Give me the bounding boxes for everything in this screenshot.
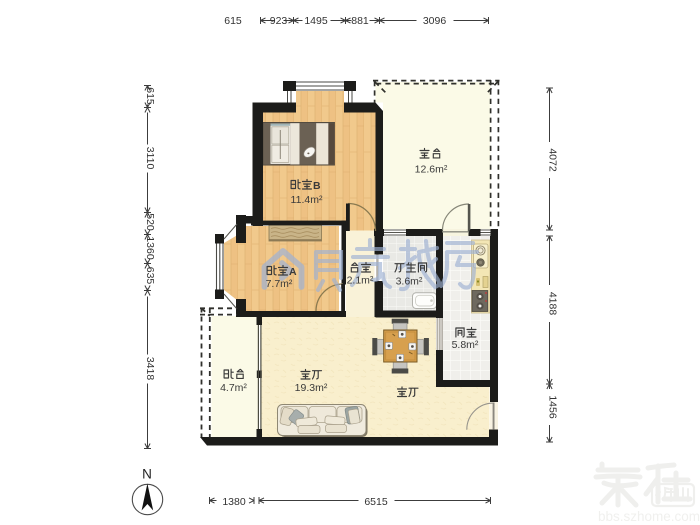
svg-text:5.8m²: 5.8m² [452, 339, 479, 351]
svg-text:4188: 4188 [547, 292, 559, 316]
svg-text:3096: 3096 [423, 15, 447, 27]
svg-text:881: 881 [351, 15, 369, 27]
svg-text:923: 923 [270, 15, 288, 27]
svg-text:4.7m²: 4.7m² [220, 382, 247, 394]
svg-text:7.7m²: 7.7m² [266, 278, 293, 290]
svg-text:2.1m²: 2.1m² [347, 275, 374, 287]
svg-text:1456: 1456 [547, 395, 559, 419]
svg-text:1380: 1380 [222, 496, 246, 508]
svg-text:1360: 1360 [144, 236, 156, 260]
svg-text:3.6m²: 3.6m² [396, 276, 423, 288]
svg-text:635: 635 [144, 267, 156, 285]
svg-text:N: N [142, 467, 152, 482]
svg-text:bbs.szhome.com: bbs.szhome.com [598, 509, 700, 524]
svg-text:615: 615 [224, 15, 242, 27]
svg-text:19.3m²: 19.3m² [295, 382, 328, 394]
svg-text:1495: 1495 [304, 15, 328, 27]
svg-text:12.6m²: 12.6m² [415, 164, 448, 176]
svg-text:615: 615 [144, 87, 156, 105]
svg-text:520: 520 [144, 213, 156, 231]
svg-text:3418: 3418 [144, 357, 156, 381]
svg-text:A: A [289, 266, 297, 278]
svg-text:11.4m²: 11.4m² [291, 194, 323, 206]
svg-text:B: B [313, 180, 321, 192]
svg-text:3110: 3110 [144, 147, 156, 170]
svg-text:4072: 4072 [547, 148, 559, 172]
svg-text:6515: 6515 [364, 496, 388, 508]
